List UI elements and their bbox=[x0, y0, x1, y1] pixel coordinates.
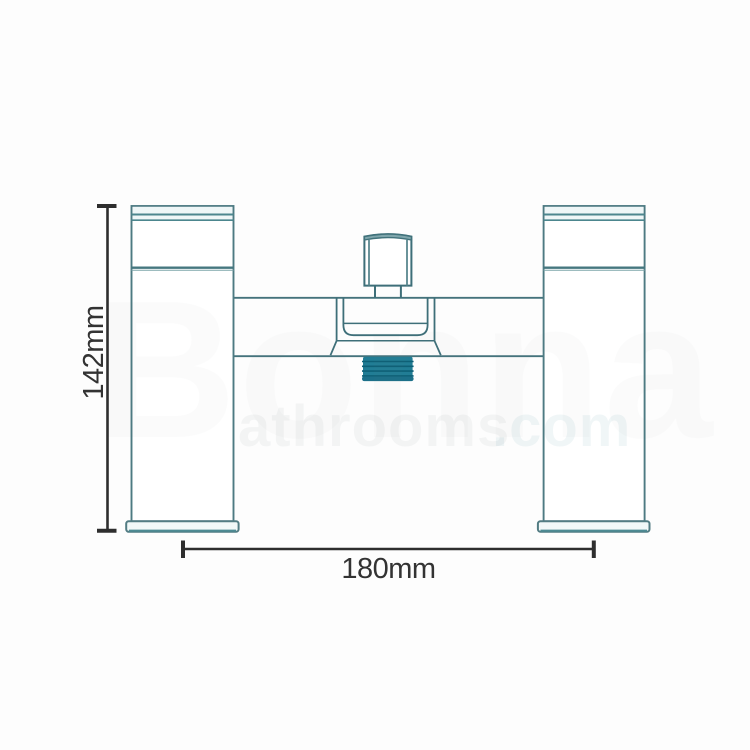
svg-text:athrooms: athrooms bbox=[238, 394, 510, 459]
svg-text:.com: .com bbox=[492, 394, 631, 459]
svg-text:180mm: 180mm bbox=[341, 553, 435, 585]
svg-text:142mm: 142mm bbox=[78, 305, 110, 399]
